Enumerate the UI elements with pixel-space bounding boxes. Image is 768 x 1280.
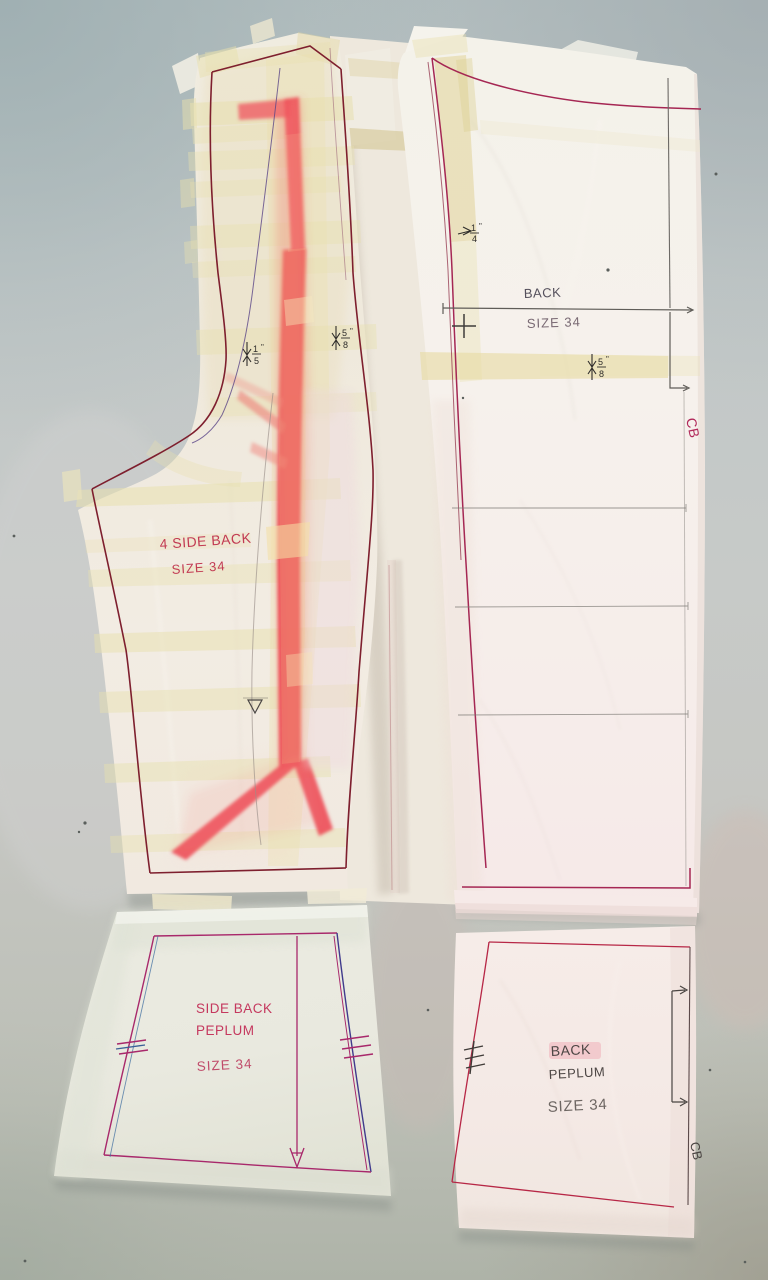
svg-text:": ": [350, 327, 353, 336]
svg-text:4: 4: [472, 234, 477, 244]
svg-text:": ": [261, 343, 264, 352]
svg-text:": ": [606, 355, 609, 364]
svg-text:1: 1: [471, 223, 476, 233]
svg-text:PEPLUM: PEPLUM: [196, 1023, 255, 1038]
svg-text:8: 8: [343, 340, 348, 350]
svg-text:BACK: BACK: [524, 285, 562, 301]
svg-text:SIZE 34: SIZE 34: [527, 314, 581, 331]
svg-text:SIZE 34: SIZE 34: [196, 1056, 252, 1074]
svg-text:5: 5: [598, 357, 603, 367]
svg-text:": ": [479, 222, 482, 231]
svg-text:SIDE BACK: SIDE BACK: [196, 1001, 273, 1016]
svg-text:SIZE 34: SIZE 34: [547, 1096, 608, 1116]
svg-text:BACK: BACK: [550, 1041, 591, 1059]
svg-text:5: 5: [342, 328, 347, 338]
svg-text:8: 8: [599, 369, 604, 379]
svg-text:5: 5: [254, 356, 259, 366]
svg-text:PEPLUM: PEPLUM: [548, 1064, 605, 1082]
svg-text:1: 1: [253, 344, 258, 354]
